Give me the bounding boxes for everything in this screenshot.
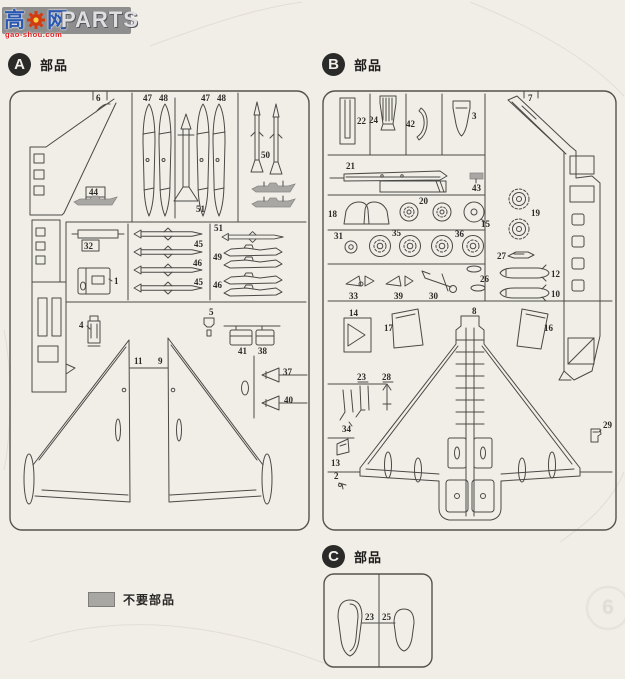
- part-label-b-23: 23: [357, 372, 367, 382]
- part-22-drawing: [340, 98, 355, 144]
- watermark-site-text: gao-shou.com: [5, 30, 62, 39]
- part-49-hulls-drawing: [224, 245, 282, 268]
- part-label-b-34: 34: [342, 424, 352, 434]
- part-label-a-37: 37: [283, 367, 293, 377]
- fuselage-spine-strip-drawing: [32, 220, 75, 392]
- panel-b-badge: B: [322, 53, 345, 76]
- unused-ship-silhouettes: [252, 181, 295, 207]
- part-label-b-39: 39: [394, 291, 404, 301]
- part-label-a-51-center: 51: [196, 204, 206, 214]
- part-33-drawing: [346, 276, 374, 286]
- part-43-drawing: [470, 173, 483, 183]
- part-19-gears-drawing: [509, 189, 529, 239]
- part-label-a-4: 4: [79, 320, 84, 330]
- part-label-b-36: 36: [455, 229, 465, 239]
- sprue-b-diagram: 22 24 42 3 7 21 43 18: [320, 88, 620, 534]
- part-21-drawing: [344, 171, 447, 192]
- part-label-b-27: 27: [497, 251, 507, 261]
- part-14-intake-drawing: [344, 318, 371, 352]
- part-39-drawing: [386, 276, 413, 286]
- part-label-b-16: 16: [544, 323, 554, 333]
- part-label-a-44: 44: [89, 187, 99, 197]
- part-label-a-32: 32: [84, 241, 94, 251]
- sprue-c-diagram: 23 25: [322, 572, 438, 672]
- right-wing-drawing: [168, 338, 272, 504]
- part-label-b-33: 33: [349, 291, 359, 301]
- watermark-brand-text: PARTS: [61, 9, 139, 31]
- part-label-b-35: 35: [392, 228, 402, 238]
- part-label-b-22: 22: [357, 116, 367, 126]
- part-label-b-30: 30: [429, 291, 439, 301]
- part-label-a-46-mid: 46: [193, 258, 203, 268]
- panel-c-badge: C: [322, 545, 345, 568]
- part-13-wedge-drawing: [337, 439, 349, 455]
- part-12-drawing: [500, 265, 549, 281]
- part-6-drawing: [30, 91, 116, 215]
- panel-b-header: B 部品: [322, 53, 382, 76]
- part-label-c-23: 23: [365, 612, 375, 622]
- part-label-a-47-1: 47: [143, 93, 153, 103]
- part-label-b-43: 43: [472, 183, 482, 193]
- panel-a-title: 部品: [40, 55, 68, 74]
- part-8-lower-fuselage-drawing: [360, 316, 580, 520]
- part-label-a-48-2: 48: [217, 93, 227, 103]
- part-34-rods-drawing: [340, 390, 353, 426]
- part-label-b-31: 31: [334, 231, 344, 241]
- page-number-showthrough: 6: [586, 586, 625, 630]
- part-2-drawing: [339, 483, 347, 489]
- part-41-38-drawing: [230, 326, 274, 345]
- part-label-b-14: 14: [349, 308, 359, 318]
- part-30-strut-drawing: [422, 271, 457, 293]
- part-32-drawing: [72, 230, 124, 251]
- part-24-seat-drawing: [380, 96, 396, 130]
- part-label-b-19: 19: [531, 208, 541, 218]
- part-label-b-3: 3: [472, 111, 477, 121]
- part-label-b-7: 7: [528, 93, 533, 103]
- part-label-b-24: 24: [369, 115, 379, 125]
- unused-parts-legend: 不要部品: [88, 591, 175, 608]
- part-46-hulls-drawing: [224, 273, 282, 296]
- part-label-a-51-right: 51: [214, 223, 224, 233]
- watermark-logo: 高 网 PARTS gao-shou.com: [0, 5, 150, 47]
- unused-parts-swatch: [88, 592, 115, 607]
- part-label-a-1: 1: [114, 276, 119, 286]
- part-10-drawing: [500, 285, 549, 301]
- panel-a-badge: A: [8, 53, 31, 76]
- part-23-canopy-drawing: [338, 600, 362, 656]
- left-wing-drawing: [24, 340, 130, 504]
- part-label-b-28: 28: [382, 372, 392, 382]
- part-17-fin-drawing: [392, 309, 423, 348]
- part-label-b-20: 20: [419, 196, 429, 206]
- part-label-a-47-2: 47: [201, 93, 211, 103]
- unused-parts-label: 不要部品: [123, 591, 175, 608]
- part-4-seat-drawing: [87, 316, 100, 346]
- part-50-missiles-drawing: [251, 102, 282, 174]
- part-7-fuselage-drawing: [508, 91, 600, 380]
- panel-c-title: 部品: [354, 547, 382, 566]
- part-37-40-nozzles-drawing: [242, 368, 280, 410]
- part-label-a-5: 5: [209, 307, 214, 317]
- part-label-b-26: 26: [480, 274, 490, 284]
- part-45-missiles-drawing: [134, 228, 202, 294]
- part-1-drawing: [78, 268, 112, 294]
- part-label-a-49: 49: [213, 252, 223, 262]
- part-label-a-45-1: 45: [194, 239, 204, 249]
- part-label-b-2: 2: [334, 471, 339, 481]
- part-42-drawing: [417, 108, 427, 140]
- part-label-b-12: 12: [551, 269, 561, 279]
- part-51-right-missile-drawing: [222, 232, 283, 243]
- part-label-a-9: 9: [158, 356, 163, 366]
- part-27-drawing: [508, 252, 534, 258]
- part-label-a-46-right: 46: [213, 280, 223, 290]
- panel-b-title: 部品: [354, 55, 382, 74]
- part-23-28-struts-drawing: [356, 382, 393, 417]
- part-label-a-50: 50: [261, 150, 271, 160]
- part-label-b-29: 29: [603, 420, 613, 430]
- part-label-a-38: 38: [258, 346, 268, 356]
- part-label-b-15: 15: [481, 219, 491, 229]
- part-3-nosecone-drawing: [453, 101, 470, 136]
- part-label-b-8: 8: [472, 306, 477, 316]
- part-25-canopy-drawing: [394, 609, 414, 651]
- part-51-center-missile-drawing: [174, 114, 198, 201]
- part-29-drawing: [591, 429, 601, 442]
- part-label-b-42: 42: [406, 119, 416, 129]
- part-label-b-13: 13: [331, 458, 341, 468]
- panel-c-header: C 部品: [322, 545, 382, 568]
- part-label-a-48-1: 48: [159, 93, 169, 103]
- part-label-b-18: 18: [328, 209, 338, 219]
- sprue-a-diagram: 44 6 47 48 47 48 51 50 32 1: [8, 88, 312, 534]
- watermark-cn-first: 高: [4, 10, 25, 31]
- panel-a-header: A 部品: [8, 53, 68, 76]
- part-label-a-45-2: 45: [194, 277, 204, 287]
- part-5-drawing: [204, 318, 214, 336]
- gear-icon: [25, 9, 47, 31]
- part-label-a-41: 41: [238, 346, 248, 356]
- part-label-b-21: 21: [346, 161, 356, 171]
- part-label-a-6: 6: [96, 93, 101, 103]
- part-label-a-11: 11: [134, 356, 143, 366]
- part-label-b-10: 10: [551, 289, 561, 299]
- part-label-b-17: 17: [384, 323, 394, 333]
- part-label-a-40: 40: [284, 395, 294, 405]
- part-label-c-25: 25: [382, 612, 392, 622]
- part-18-windscreen-drawing: [344, 202, 389, 224]
